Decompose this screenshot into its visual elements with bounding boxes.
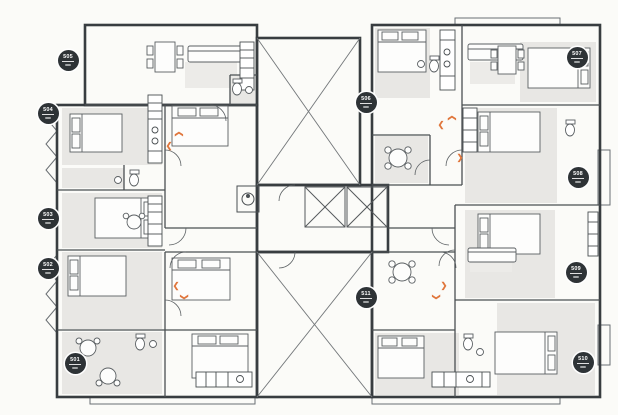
unit-badge-divider (42, 219, 54, 220)
entry-direction-chevron-icon: ❯ (180, 293, 188, 301)
entry-direction-chevron-icon: ❯ (456, 154, 464, 162)
unit-badge-number: 511 (361, 290, 370, 298)
entry-direction-chevron-icon: ❯ (165, 142, 173, 150)
unit-badge-number: 506 (361, 95, 371, 103)
unit-badge: 504 (38, 103, 59, 124)
unit-badge-sublabel (45, 117, 51, 119)
unit-badge-number: 501 (70, 356, 80, 364)
unit-badge-number: 508 (573, 170, 583, 178)
unit-badge-sublabel (574, 61, 580, 63)
unit-badge: 501 (65, 353, 86, 374)
entry-direction-chevron-icon: ❯ (440, 282, 448, 290)
floor-plan: 501502503504505506507508509510511❯❯❯❯❯❯❯… (0, 0, 618, 415)
unit-badge: 502 (38, 258, 59, 279)
unit-badge-number: 509 (571, 265, 581, 273)
unit-badge-number: 504 (43, 106, 53, 114)
unit-badge-sublabel (575, 181, 581, 183)
unit-badge-sublabel (65, 64, 71, 66)
unit-badge: 503 (38, 208, 59, 229)
unit-badge-sublabel (45, 272, 51, 274)
unit-badge-sublabel (72, 367, 78, 369)
floor-plan-drawing (0, 0, 618, 415)
unit-badge-sublabel (580, 366, 586, 368)
entry-direction-chevron-icon: ❯ (437, 121, 445, 129)
entry-direction-chevron-icon: ❯ (432, 293, 440, 301)
unit-badge-sublabel (363, 106, 369, 108)
unit-badge: 505 (58, 50, 79, 71)
unit-badge-number: 510 (578, 355, 588, 363)
unit-badge: 511 (356, 287, 377, 308)
unit-badge-divider (572, 178, 584, 179)
unit-badge-divider (69, 364, 81, 365)
unit-badge-sublabel (573, 276, 579, 278)
unit-badge-divider (42, 269, 54, 270)
unit-badge-number: 505 (63, 53, 73, 61)
unit-badge-number: 502 (43, 261, 53, 269)
unit-badge: 510 (573, 352, 594, 373)
unit-badge-sublabel (363, 301, 369, 303)
unit-badge: 506 (356, 92, 377, 113)
unit-badge-divider (62, 61, 74, 62)
entry-direction-chevron-icon: ❯ (175, 130, 183, 138)
unit-badge: 509 (566, 262, 587, 283)
unit-badge-divider (360, 298, 372, 299)
entry-direction-chevron-icon: ❯ (172, 282, 180, 290)
unit-badge-number: 507 (572, 50, 582, 58)
unit-badge-divider (42, 114, 54, 115)
unit-badge-divider (360, 103, 372, 104)
unit-badge-sublabel (45, 222, 51, 224)
unit-badge-divider (577, 363, 589, 364)
unit-badge: 507 (567, 47, 588, 68)
entry-direction-chevron-icon: ❯ (448, 114, 456, 122)
unit-badge-divider (571, 58, 583, 59)
unit-badge-divider (570, 273, 582, 274)
unit-badge-number: 503 (43, 211, 53, 219)
unit-badge: 508 (568, 167, 589, 188)
